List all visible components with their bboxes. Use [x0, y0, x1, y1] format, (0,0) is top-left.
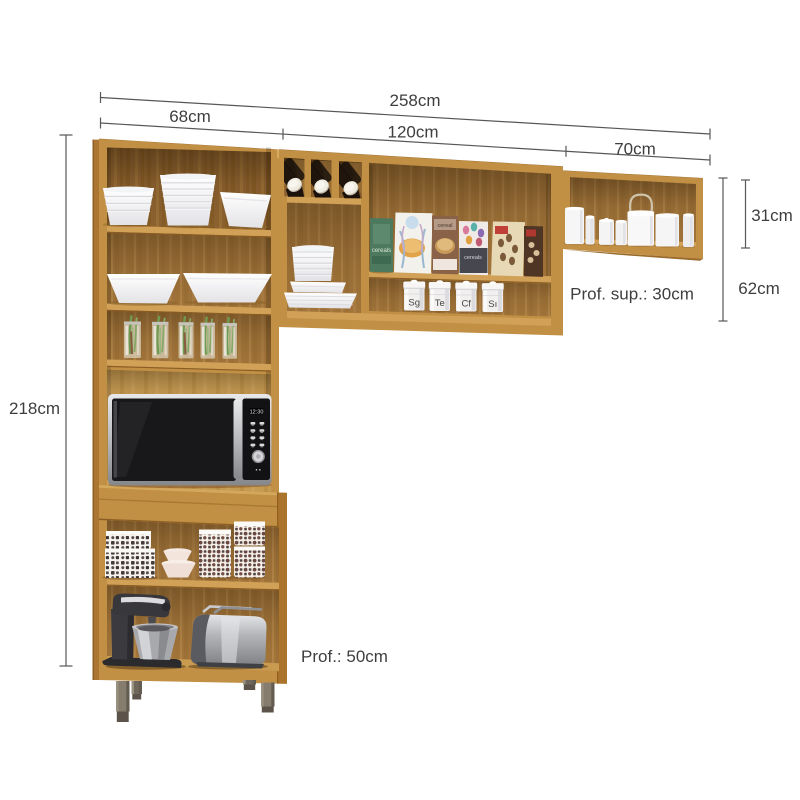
svg-text:62cm: 62cm [738, 279, 780, 298]
svg-text:▪ ▪: ▪ ▪ [256, 468, 261, 474]
svg-text:68cm: 68cm [169, 107, 211, 126]
svg-text:31cm: 31cm [751, 206, 793, 225]
svg-text:Prof. sup.: 30cm: Prof. sup.: 30cm [570, 285, 694, 304]
svg-text:cereal: cereal [438, 223, 453, 229]
svg-text:120cm: 120cm [387, 123, 438, 142]
svg-text:Sg: Sg [408, 298, 420, 309]
svg-text:70cm: 70cm [614, 140, 656, 159]
svg-text:258cm: 258cm [389, 91, 440, 110]
svg-text:Prof.: 50cm: Prof.: 50cm [301, 647, 388, 666]
svg-text:cereals: cereals [372, 248, 391, 254]
svg-text:cereals: cereals [464, 255, 482, 261]
svg-text:Cf: Cf [461, 299, 471, 310]
svg-text:12:30: 12:30 [250, 410, 264, 416]
svg-text:218cm: 218cm [9, 399, 60, 418]
svg-text:Sı: Sı [488, 299, 497, 310]
svg-text:Te: Te [435, 298, 445, 309]
